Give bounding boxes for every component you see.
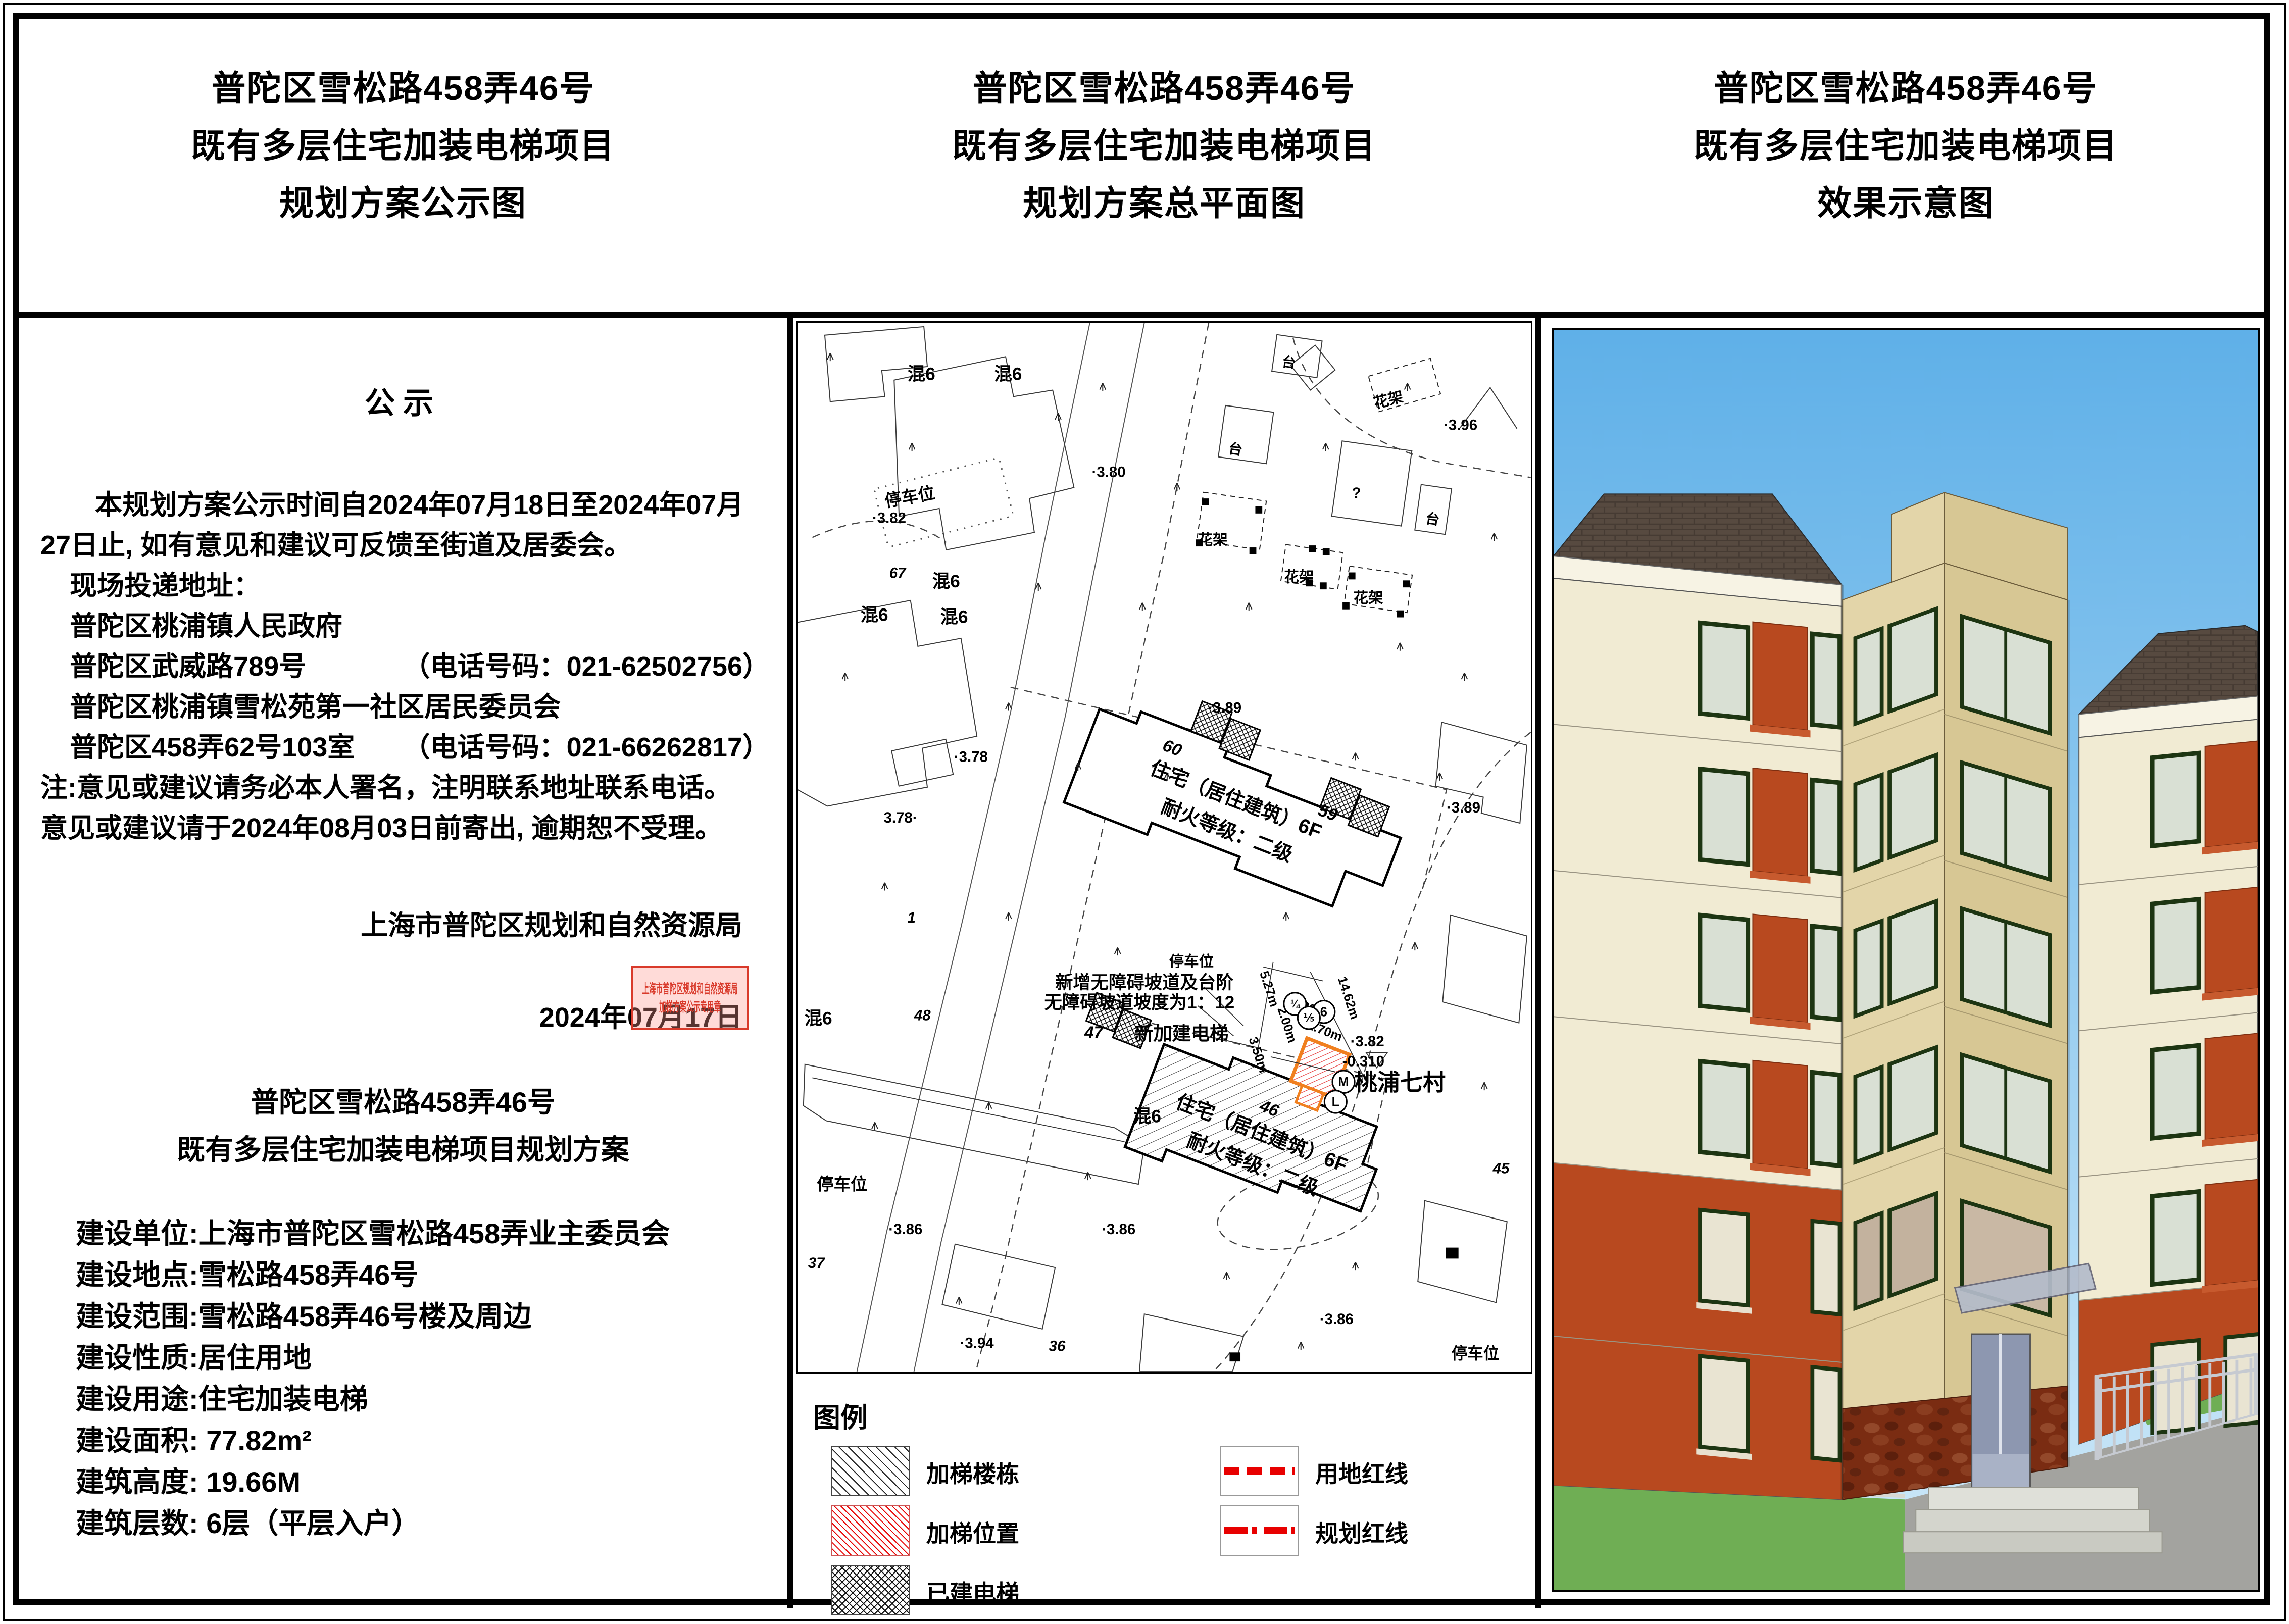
header-line: 普陀区雪松路458弄46号: [19, 60, 787, 117]
field-row: 建设单位:上海市普陀区雪松路458弄业主委员会: [76, 1213, 772, 1254]
legend-title: 图例: [813, 1395, 868, 1435]
field-value: 上海市普陀区雪松路458弄业主委员会: [198, 1217, 670, 1249]
field-value: 雪松路458弄46号楼及周边: [198, 1300, 532, 1332]
header-line: 效果示意图: [1541, 175, 2270, 232]
render-drawing: [1554, 330, 2258, 1590]
field-label: 建设性质:: [76, 1342, 198, 1374]
map-label: 混6: [994, 360, 1022, 385]
map-label: 37: [808, 1255, 825, 1272]
map-label: ·3.80: [1092, 464, 1126, 481]
header-line: 既有多层住宅加装电梯项目: [19, 117, 787, 175]
field-value: 居住用地: [198, 1342, 312, 1374]
map-label: L: [1324, 1090, 1348, 1113]
notice-line: 普陀区桃浦镇雪松苑第一社区居民委员会: [40, 687, 770, 727]
notice-phone: （电话号码：021-62502756）: [403, 646, 770, 687]
legend-label: 用地红线: [1315, 1456, 1408, 1489]
legend-label: 加梯位置: [926, 1515, 1019, 1549]
legend-label: 规划红线: [1315, 1515, 1408, 1549]
legend-swatch-existing-elevator: [831, 1565, 910, 1615]
siteplan-map: 混6混6混6混6混6混6混6停车位停车位停车位停车位·3.82·3.80·3.9…: [796, 321, 1532, 1374]
map-label: 3.78·: [884, 809, 918, 827]
notice-text: 普陀区武威路789号: [70, 646, 306, 687]
header-line: 普陀区雪松路458弄46号: [793, 60, 1535, 117]
map-label: 47: [1084, 1023, 1103, 1043]
field-value: 住宅加装电梯: [198, 1383, 368, 1415]
map-label: 花架: [1284, 565, 1314, 587]
legend-swatch-planning-redline: [1220, 1505, 1299, 1556]
map-label: 台: [1424, 507, 1441, 529]
map-label: ·3.82: [872, 510, 906, 527]
field-label: 建设面积:: [76, 1425, 198, 1456]
field-value: 6层（平层入户）: [198, 1507, 420, 1539]
siteplan-geometry: [798, 323, 1531, 1372]
map-label: 48: [914, 1007, 931, 1025]
notice-text: 注:意见或建议请务必本人署名，注明联系地址联系电话。: [40, 768, 731, 808]
map-label: 36: [1049, 1338, 1066, 1355]
legend-swatch-building: [831, 1446, 910, 1496]
notice-text: 意见或建议请于2024年08月03日前寄出, 逾期恕不受理。: [40, 808, 722, 848]
notice-line: 普陀区458弄62号103室（电话号码：021-66262817）: [40, 727, 770, 768]
field-label: 建设用途:: [76, 1383, 198, 1415]
legend-label: 加梯楼栋: [926, 1456, 1019, 1489]
notice-text: 普陀区458弄62号103室: [70, 727, 355, 768]
map-label: ?: [1352, 485, 1361, 502]
map-label: 新加建电梯: [1134, 1018, 1228, 1045]
field-row: 建筑层数: 6层（平层入户）: [76, 1503, 772, 1544]
map-label: ·3.94: [960, 1335, 994, 1352]
map-label: 桃浦七村: [1355, 1064, 1446, 1097]
map-label: 混6: [940, 602, 968, 628]
map-label: ·3.96: [1444, 417, 1477, 434]
notice-text: 现场投递地址：: [70, 566, 261, 606]
field-label: 建设单位:: [76, 1217, 198, 1249]
legend-label: 已建电梯: [926, 1575, 1019, 1608]
map-label: 混6: [805, 1004, 832, 1030]
notice-text: 27日止, 如有意见和建议可反馈至街道及居委会。: [40, 525, 631, 566]
map-label: 混6: [1133, 1102, 1161, 1128]
map-label: 无障碍坡道坡度为1：12: [1044, 988, 1234, 1013]
map-label: 混6: [861, 600, 888, 626]
map-label: 台: [1227, 438, 1244, 460]
header-divider: [19, 312, 2270, 318]
issuing-authority: 上海市普陀区规划和自然资源局: [361, 903, 742, 943]
field-label: 建设范围:: [76, 1300, 198, 1332]
column-divider-1: [787, 312, 793, 1608]
stamp-line: 上海市普陀区规划和自然资源局: [642, 980, 737, 998]
field-label: 建筑层数:: [76, 1507, 198, 1539]
tower-side-windows: [1944, 611, 2067, 1336]
map-label: 花架: [1198, 527, 1228, 549]
field-row: 建设范围:雪松路458弄46号楼及周边: [76, 1296, 772, 1337]
map-label: ⅕: [1297, 1006, 1321, 1030]
notice-title: 公示: [19, 379, 787, 423]
field-row: 建设面积: 77.82m²: [76, 1420, 772, 1461]
map-label: 停车位: [817, 1171, 867, 1195]
project-title-line1: 普陀区雪松路458弄46号: [19, 1080, 787, 1121]
map-label: ·3.78: [954, 749, 988, 766]
notice-text: 普陀区桃浦镇雪松苑第一社区居民委员会: [70, 687, 561, 727]
field-value: 77.82m²: [198, 1425, 312, 1456]
header-line: 既有多层住宅加装电梯项目: [793, 117, 1535, 175]
field-row: 建设地点:雪松路458弄46号: [76, 1254, 772, 1296]
field-value: 雪松路458弄46号: [198, 1259, 419, 1291]
official-stamp: 上海市普陀区规划和自然资源局 加梯方案公示专用章: [631, 966, 749, 1030]
notice-line: 普陀区桃浦镇人民政府: [40, 606, 770, 646]
field-row: 建设性质:居住用地: [76, 1337, 772, 1379]
notice-body: 本规划方案公示时间自2024年07月18日至2024年07月 27日止, 如有意…: [40, 485, 770, 848]
header-left: 普陀区雪松路458弄46号 既有多层住宅加装电梯项目 规划方案公示图: [19, 60, 787, 232]
map-label: ·3.89: [1208, 700, 1241, 717]
redline-dashdot: [1224, 1527, 1295, 1534]
field-label: 建筑高度:: [76, 1466, 198, 1498]
map-label: 67: [889, 565, 906, 582]
header-middle: 普陀区雪松路458弄46号 既有多层住宅加装电梯项目 规划方案总平面图: [793, 60, 1535, 232]
building-rendering: [1552, 328, 2260, 1592]
map-label: 混6: [908, 360, 935, 385]
render-panel: [1541, 318, 2270, 1602]
redline-dashed: [1224, 1467, 1295, 1475]
field-label: 建设地点:: [76, 1259, 198, 1291]
notice-panel: 公示 本规划方案公示时间自2024年07月18日至2024年07月 27日止, …: [19, 318, 787, 1602]
legend-swatch-elevator-location: [831, 1505, 910, 1556]
grass: [1554, 1484, 1905, 1590]
header-right: 普陀区雪松路458弄46号 既有多层住宅加装电梯项目 效果示意图: [1541, 60, 2270, 232]
field-row: 建筑高度: 19.66M: [76, 1461, 772, 1503]
map-label: 45: [1493, 1160, 1510, 1178]
map-label: 台: [1281, 351, 1298, 373]
header-line: 规划方案公示图: [19, 175, 787, 232]
legend-swatch-land-redline: [1220, 1446, 1299, 1496]
header-line: 规划方案总平面图: [793, 175, 1535, 232]
header-line: 普陀区雪松路458弄46号: [1541, 60, 2270, 117]
notice-line: 注:意见或建议请务必本人署名，注明联系地址联系电话。: [40, 768, 770, 808]
siteplan-panel: 混6混6混6混6混6混6混6停车位停车位停车位停车位·3.82·3.80·3.9…: [793, 318, 1535, 1602]
legend: 图例 加梯楼栋 加梯位置 已建电梯 用地红线 规划红线: [796, 1381, 1532, 1599]
notice-line: 普陀区武威路789号（电话号码：021-62502756）: [40, 646, 770, 687]
notice-line: 27日止, 如有意见和建议可反馈至街道及居委会。: [40, 525, 770, 566]
project-fields: 建设单位:上海市普陀区雪松路458弄业主委员会 建设地点:雪松路458弄46号 …: [76, 1213, 772, 1544]
notice-line: 现场投递地址：: [40, 566, 770, 606]
notice-phone: （电话号码：021-66262817）: [403, 727, 770, 768]
notice-line: 本规划方案公示时间自2024年07月18日至2024年07月: [40, 485, 770, 525]
notice-text: 普陀区桃浦镇人民政府: [70, 606, 342, 646]
header-line: 既有多层住宅加装电梯项目: [1541, 117, 2270, 175]
project-title-line2: 既有多层住宅加装电梯项目规划方案: [19, 1127, 787, 1168]
map-label: ·3.86: [1102, 1221, 1135, 1238]
map-label: ·3.86: [1320, 1311, 1354, 1328]
siteplan-drawing: 混6混6混6混6混6混6混6停车位停车位停车位停车位·3.82·3.80·3.9…: [798, 323, 1531, 1372]
map-label: 1: [907, 909, 915, 927]
stamp-line: 加梯方案公示专用章: [659, 998, 721, 1016]
map-label: 花架: [1354, 585, 1383, 607]
column-divider-2: [1535, 312, 1541, 1608]
map-label: ·3.86: [888, 1221, 922, 1238]
notice-text: 本规划方案公示时间自2024年07月18日至2024年07月: [95, 485, 743, 525]
map-label: 停车位: [1452, 1341, 1499, 1364]
field-value: 19.66M: [198, 1466, 301, 1498]
map-label: ·3.89: [1447, 799, 1480, 817]
planning-notice-poster: 普陀区雪松路458弄46号 既有多层住宅加装电梯项目 规划方案公示图 普陀区雪松…: [0, 0, 2289, 1624]
map-label: ·3.82: [1351, 1033, 1384, 1050]
notice-line: 意见或建议请于2024年08月03日前寄出, 逾期恕不受理。: [40, 808, 770, 848]
field-row: 建设用途:住宅加装电梯: [76, 1379, 772, 1420]
map-label: 混6: [932, 567, 960, 593]
entrance-steps: [1928, 1487, 2138, 1509]
